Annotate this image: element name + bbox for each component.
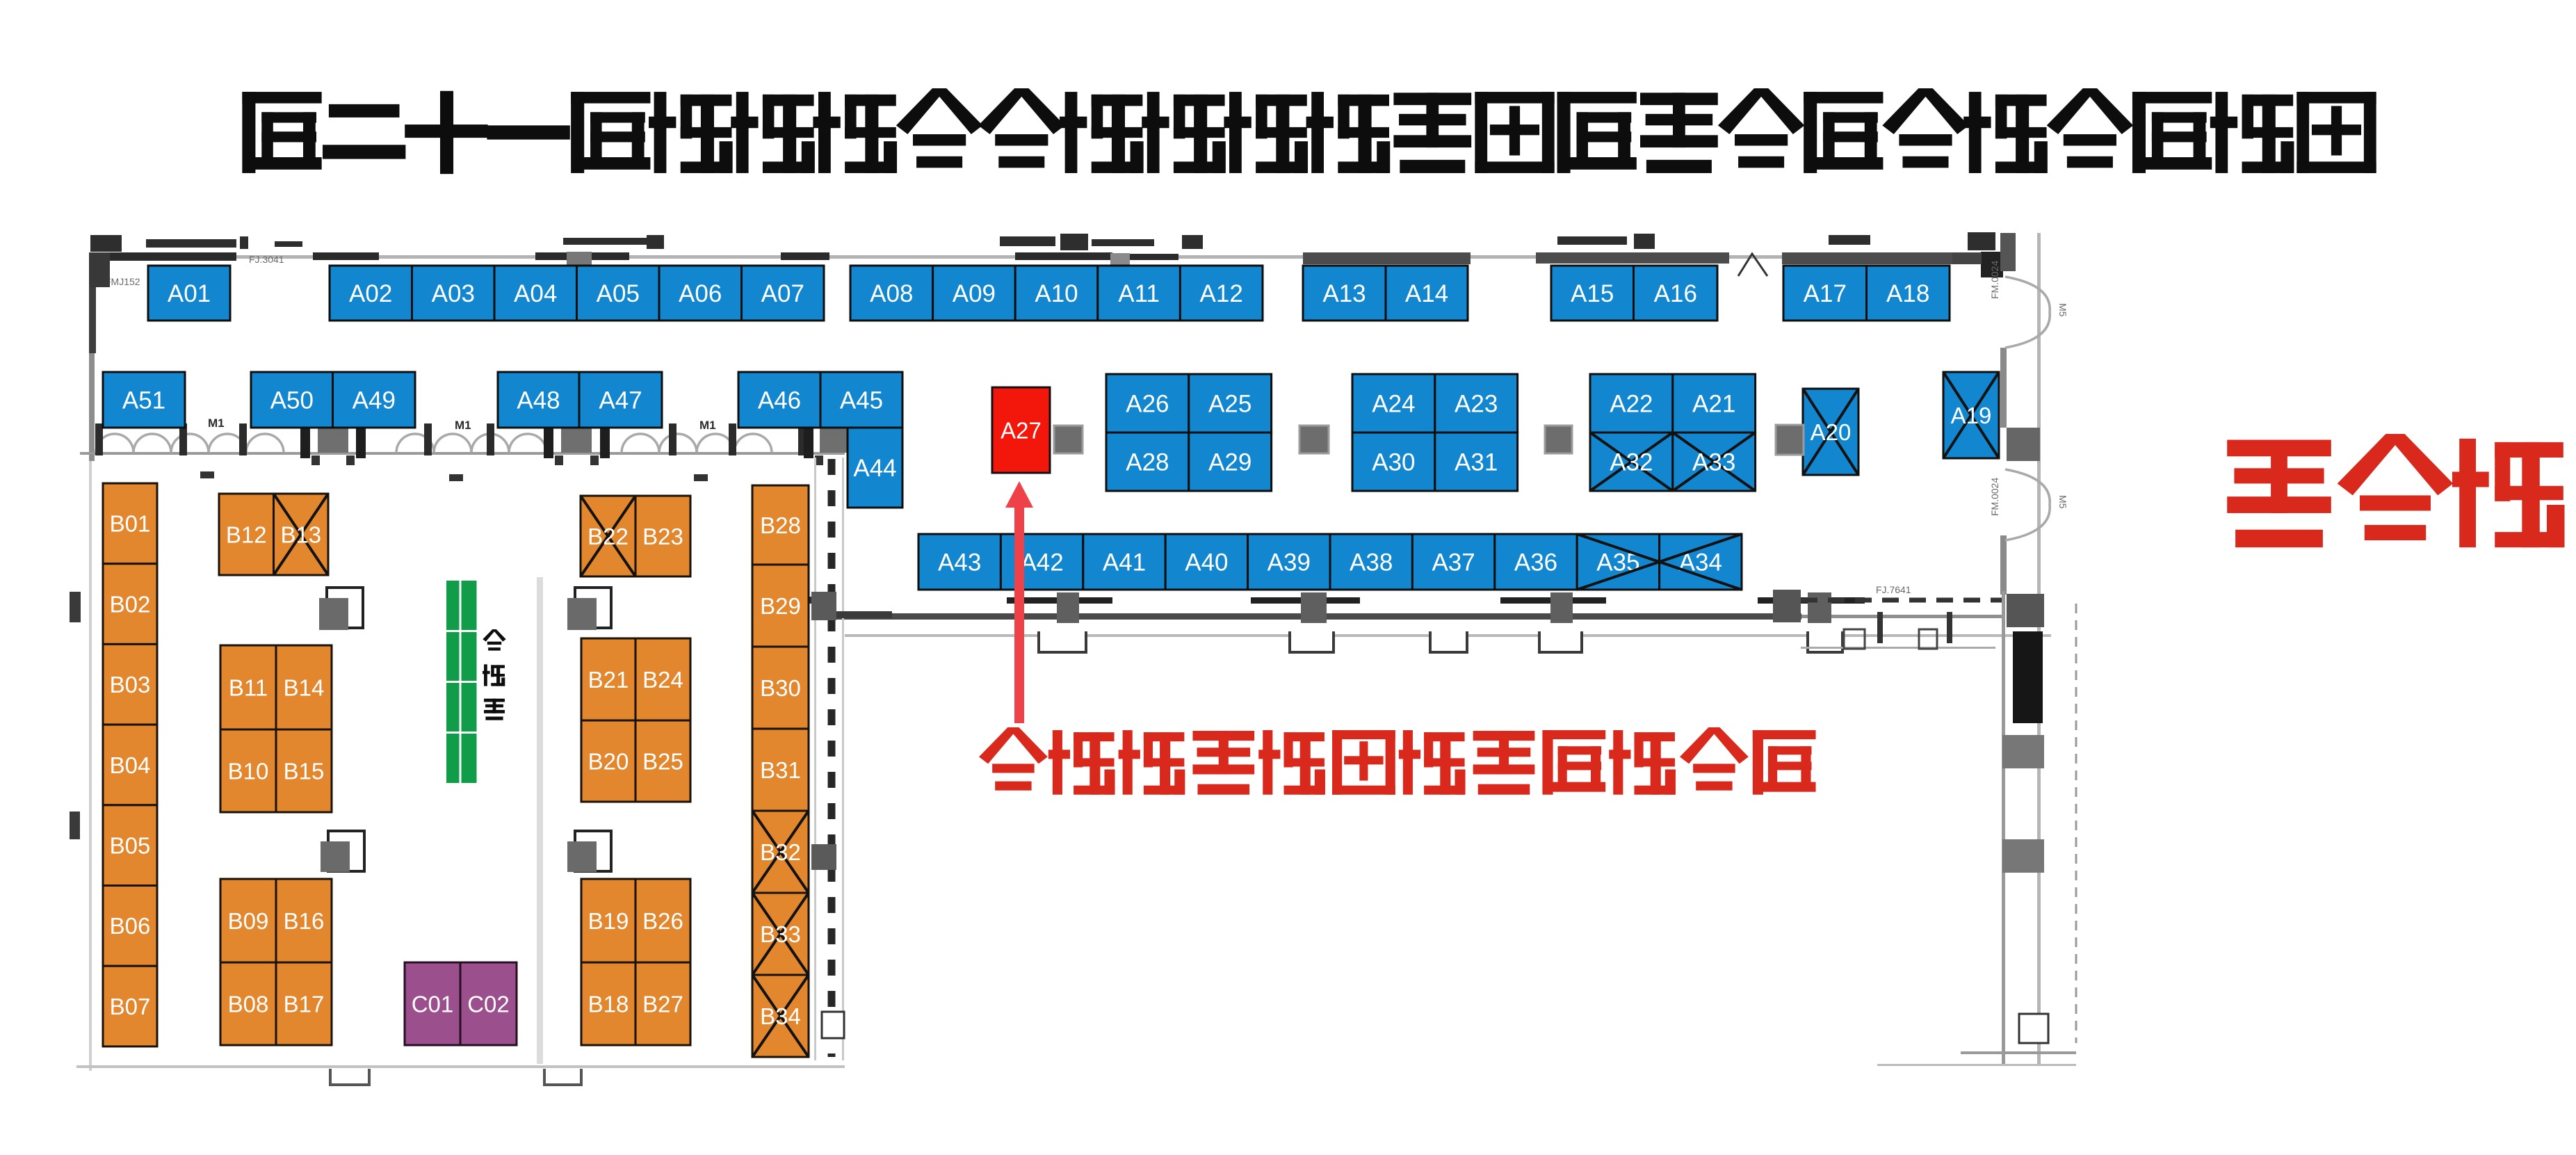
svg-text:A05: A05	[597, 280, 640, 307]
svg-text:A18: A18	[1886, 280, 1929, 307]
svg-text:A48: A48	[517, 387, 560, 414]
svg-text:B09: B09	[228, 908, 269, 934]
svg-text:A25: A25	[1208, 391, 1251, 418]
svg-text:B17: B17	[284, 991, 325, 1017]
svg-text:B21: B21	[588, 667, 629, 693]
svg-text:B01: B01	[110, 511, 151, 537]
svg-text:A30: A30	[1372, 449, 1415, 476]
svg-text:B13: B13	[280, 522, 321, 547]
svg-text:A03: A03	[432, 280, 475, 307]
svg-text:B08: B08	[228, 991, 269, 1017]
svg-text:A42: A42	[1020, 549, 1063, 576]
svg-text:FJ.7641: FJ.7641	[1876, 584, 1911, 595]
svg-text:B15: B15	[284, 758, 325, 784]
svg-text:B26: B26	[642, 908, 683, 934]
svg-text:A49: A49	[353, 387, 396, 414]
svg-text:B16: B16	[284, 908, 325, 934]
svg-text:A01: A01	[168, 280, 211, 307]
svg-text:A46: A46	[758, 387, 801, 414]
svg-text:A51: A51	[122, 387, 165, 414]
svg-text:M5: M5	[2057, 495, 2068, 509]
svg-text:B10: B10	[228, 758, 269, 784]
svg-text:B24: B24	[642, 667, 683, 693]
svg-text:A50: A50	[270, 387, 314, 414]
svg-text:A31: A31	[1455, 449, 1498, 476]
svg-text:B32: B32	[760, 839, 801, 865]
svg-text:A38: A38	[1350, 549, 1393, 576]
svg-text:A15: A15	[1571, 280, 1614, 307]
svg-text:B07: B07	[110, 994, 151, 1019]
svg-text:B11: B11	[229, 675, 268, 700]
svg-text:C02: C02	[467, 991, 510, 1017]
svg-text:A06: A06	[679, 280, 722, 307]
svg-text:B12: B12	[226, 522, 267, 547]
svg-text:B19: B19	[588, 908, 629, 934]
svg-text:A22: A22	[1610, 391, 1653, 418]
svg-text:B33: B33	[760, 921, 801, 947]
svg-text:A40: A40	[1185, 549, 1228, 576]
svg-text:A07: A07	[761, 280, 804, 307]
svg-text:A20: A20	[1811, 419, 1852, 445]
svg-text:A32: A32	[1610, 449, 1653, 476]
svg-text:M5: M5	[2057, 303, 2068, 317]
svg-text:M1: M1	[208, 417, 225, 430]
svg-text:B14: B14	[284, 675, 325, 700]
svg-text:A27: A27	[1001, 417, 1042, 443]
svg-text:A33: A33	[1692, 449, 1735, 476]
svg-text:M1: M1	[455, 419, 471, 432]
svg-text:B02: B02	[110, 591, 151, 617]
svg-text:A28: A28	[1126, 449, 1169, 476]
svg-text:A13: A13	[1322, 280, 1366, 307]
svg-text:A16: A16	[1654, 280, 1697, 307]
svg-text:A26: A26	[1126, 391, 1169, 418]
svg-text:A44: A44	[853, 455, 896, 482]
svg-text:A10: A10	[1035, 280, 1078, 307]
svg-text:A12: A12	[1200, 280, 1243, 307]
svg-text:B31: B31	[760, 757, 801, 783]
svg-text:A29: A29	[1208, 449, 1251, 476]
svg-text:B29: B29	[760, 593, 801, 619]
svg-text:FMJ152: FMJ152	[105, 276, 140, 287]
svg-text:B25: B25	[642, 748, 683, 774]
svg-text:A37: A37	[1432, 549, 1475, 576]
svg-text:B06: B06	[110, 913, 151, 939]
svg-text:A04: A04	[514, 280, 557, 307]
svg-text:M1: M1	[699, 419, 716, 432]
svg-text:A47: A47	[599, 387, 642, 414]
svg-text:C01: C01	[412, 991, 454, 1017]
svg-text:A09: A09	[953, 280, 996, 307]
svg-text:A23: A23	[1455, 391, 1498, 418]
svg-text:B28: B28	[760, 512, 801, 538]
svg-text:A11: A11	[1118, 280, 1160, 307]
svg-text:A45: A45	[840, 387, 883, 414]
svg-text:A21: A21	[1692, 391, 1735, 418]
svg-text:A08: A08	[870, 280, 913, 307]
svg-text:B04: B04	[110, 752, 151, 778]
svg-text:A17: A17	[1804, 280, 1847, 307]
svg-text:A43: A43	[938, 549, 981, 576]
svg-text:A24: A24	[1372, 391, 1415, 418]
svg-text:B30: B30	[760, 675, 801, 701]
svg-text:A19: A19	[1951, 403, 1992, 428]
svg-text:B23: B23	[642, 524, 683, 549]
svg-text:A02: A02	[349, 280, 392, 307]
svg-text:B20: B20	[588, 748, 629, 774]
svg-text:FJ.3041: FJ.3041	[249, 254, 284, 265]
svg-text:B27: B27	[642, 991, 683, 1017]
svg-text:B05: B05	[110, 833, 151, 859]
svg-text:B03: B03	[110, 672, 151, 697]
svg-text:B18: B18	[588, 991, 629, 1017]
svg-text:FM.0024: FM.0024	[1989, 261, 2000, 299]
svg-text:B22: B22	[588, 524, 629, 549]
svg-text:B34: B34	[760, 1003, 801, 1029]
svg-text:FM.0024: FM.0024	[1989, 478, 2000, 516]
svg-text:A39: A39	[1267, 549, 1311, 576]
svg-text:A36: A36	[1514, 549, 1557, 576]
svg-text:A14: A14	[1405, 280, 1448, 307]
svg-text:A41: A41	[1103, 549, 1146, 576]
